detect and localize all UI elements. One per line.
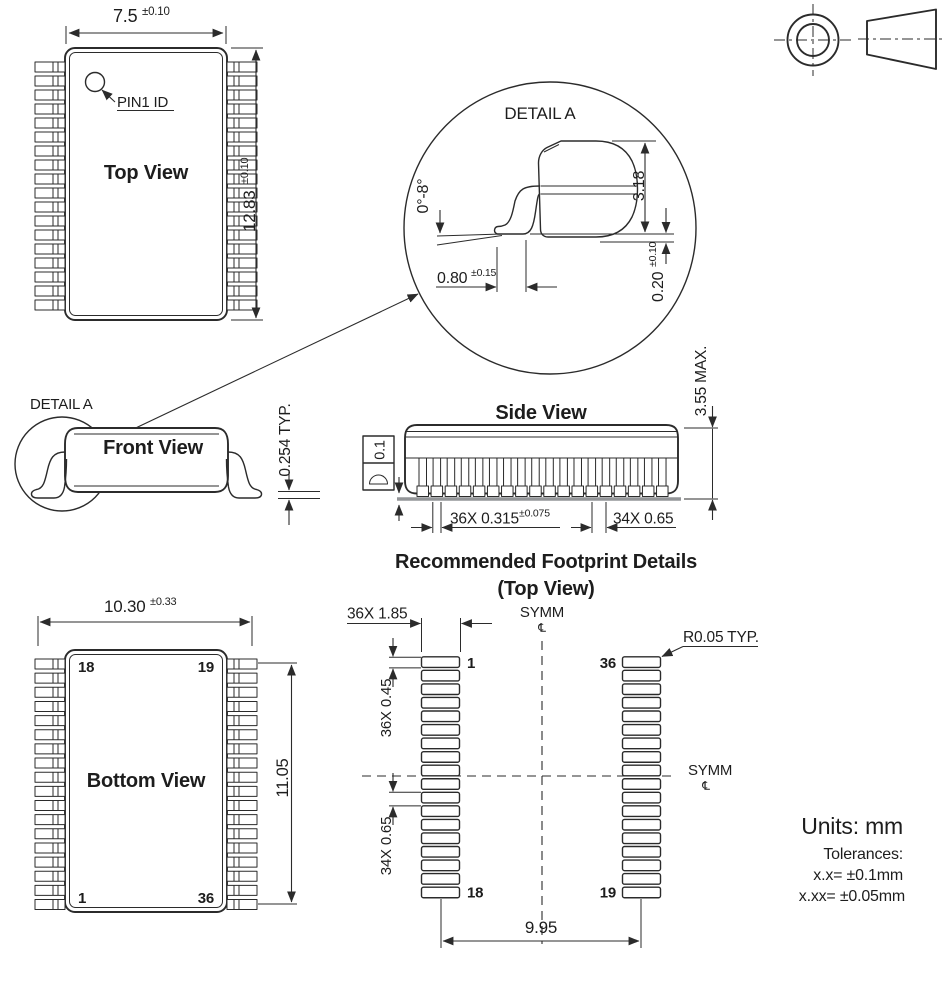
top-view-pins-left bbox=[35, 62, 65, 310]
detail-lead bbox=[495, 186, 540, 234]
footprint-pad bbox=[623, 806, 661, 817]
detail-a-title: DETAIL A bbox=[504, 104, 576, 123]
footprint-pad bbox=[422, 657, 460, 668]
top-view-title: Top View bbox=[104, 162, 189, 184]
third-angle-projection-icon bbox=[774, 4, 945, 76]
side-lead-width-value: 36X 0.315 bbox=[450, 511, 519, 528]
pin bbox=[227, 146, 257, 156]
front-view-title: Front View bbox=[103, 437, 204, 459]
package-mechanical-drawing: 7.5 ±0.10 PIN1 ID Top View 12.83 ±0.10 D… bbox=[0, 0, 952, 983]
footprint-pad bbox=[623, 847, 661, 858]
pin bbox=[35, 843, 65, 853]
footprint-pad bbox=[623, 765, 661, 776]
notes-block: Units: mm Tolerances: x.x= ±0.1mm x.xx= … bbox=[799, 813, 905, 905]
pin bbox=[227, 687, 257, 697]
side-lead bbox=[431, 458, 443, 497]
footprint-pad bbox=[422, 684, 460, 695]
footprint-pad bbox=[422, 765, 460, 776]
pin bbox=[227, 786, 257, 796]
footprint-pad bbox=[422, 847, 460, 858]
bottom-view-span-dimension: 11.05 bbox=[258, 663, 297, 904]
footprint-pad bbox=[422, 711, 460, 722]
footprint-corner-radius-value: R0.05 TYP. bbox=[683, 629, 759, 646]
footprint-pad bbox=[422, 752, 460, 763]
side-lead bbox=[417, 458, 429, 497]
pin bbox=[227, 772, 257, 782]
bottom-pin36-label: 36 bbox=[198, 890, 214, 907]
pin bbox=[227, 132, 257, 142]
pin bbox=[227, 801, 257, 811]
side-lead bbox=[628, 458, 640, 497]
pin bbox=[35, 300, 65, 310]
footprint-pads-right bbox=[623, 657, 661, 898]
footprint-pad19-label: 19 bbox=[600, 885, 616, 902]
footprint-pad bbox=[422, 887, 460, 898]
pin bbox=[227, 871, 257, 881]
footprint-pad-pitch-value: 34X 0.65 bbox=[378, 817, 395, 875]
bottom-width-tolerance: ±0.33 bbox=[150, 596, 177, 608]
footprint-pad bbox=[623, 833, 661, 844]
pin bbox=[227, 673, 257, 683]
footprint-pad bbox=[422, 792, 460, 803]
top-view-pins-right bbox=[227, 62, 257, 310]
side-lead bbox=[459, 458, 471, 497]
footprint-pad bbox=[422, 738, 460, 749]
footprint-title-line1: Recommended Footprint Details bbox=[395, 551, 697, 573]
pin bbox=[35, 871, 65, 881]
pin bbox=[35, 76, 65, 86]
pin bbox=[227, 286, 257, 296]
top-view-width-dimension: 7.5 ±0.10 bbox=[66, 6, 226, 44]
footprint-pad bbox=[422, 819, 460, 830]
detail-lead-thickness-dimension: 0.20 ±0.10 bbox=[647, 208, 667, 302]
pin bbox=[35, 829, 65, 839]
footprint-pad bbox=[422, 806, 460, 817]
top-view: 7.5 ±0.10 PIN1 ID Top View 12.83 ±0.10 bbox=[35, 6, 263, 320]
pin bbox=[35, 815, 65, 825]
footprint-pad bbox=[623, 738, 661, 749]
pin bbox=[227, 843, 257, 853]
pin bbox=[35, 772, 65, 782]
pin bbox=[35, 160, 65, 170]
pin bbox=[35, 857, 65, 867]
side-lead bbox=[586, 458, 598, 497]
pin bbox=[35, 188, 65, 198]
pin bbox=[227, 244, 257, 254]
footprint-pad bbox=[623, 752, 661, 763]
side-view-title: Side View bbox=[495, 402, 587, 424]
pin bbox=[35, 174, 65, 184]
top-width-tolerance: ±0.10 bbox=[142, 6, 170, 18]
pin bbox=[35, 104, 65, 114]
footprint-view: SYMM ℄ SYMM ℄ 1 18 36 19 36X 1.85 R0.05 … bbox=[347, 604, 759, 948]
side-lead bbox=[502, 458, 514, 497]
pin bbox=[227, 900, 257, 910]
detail-lead-angle: 0°-8° bbox=[415, 179, 502, 245]
footprint-pad bbox=[422, 670, 460, 681]
pin bbox=[227, 76, 257, 86]
pin bbox=[227, 701, 257, 711]
pin bbox=[35, 118, 65, 128]
pin bbox=[35, 716, 65, 726]
footprint-pad bbox=[623, 874, 661, 885]
symm-label-top: SYMM bbox=[520, 604, 564, 621]
footprint-pad-width-value: 36X 0.45 bbox=[378, 679, 395, 737]
bottom-pin18-label: 18 bbox=[78, 659, 94, 676]
footprint-pad bbox=[623, 779, 661, 790]
pin bbox=[227, 258, 257, 268]
footprint-pad bbox=[422, 779, 460, 790]
footprint-pad bbox=[623, 670, 661, 681]
footprint-pad bbox=[422, 833, 460, 844]
side-lead bbox=[445, 458, 457, 497]
pin bbox=[227, 744, 257, 754]
bottom-span-value: 11.05 bbox=[274, 758, 292, 797]
detail-lead-thickness-value: 0.20 bbox=[650, 271, 667, 302]
pin bbox=[35, 659, 65, 669]
detail-foot-length-value: 0.80 bbox=[437, 270, 468, 287]
footprint-pad bbox=[623, 819, 661, 830]
pin bbox=[227, 62, 257, 72]
detail-foot-length-tolerance: ±0.15 bbox=[471, 267, 497, 279]
side-lead bbox=[530, 458, 542, 497]
bottom-pin19-label: 19 bbox=[198, 659, 214, 676]
side-lead bbox=[642, 458, 654, 497]
side-lead bbox=[544, 458, 556, 497]
flatness-value: 0.1 bbox=[373, 440, 389, 460]
footprint-pad bbox=[623, 711, 661, 722]
top-height-value: 12.83 bbox=[240, 190, 259, 232]
pin bbox=[227, 90, 257, 100]
side-lead bbox=[572, 458, 584, 497]
detail-a-callout-label: DETAIL A bbox=[30, 396, 93, 413]
bottom-width-value: 10.30 bbox=[104, 597, 146, 616]
side-lead bbox=[516, 458, 528, 497]
pin bbox=[227, 272, 257, 282]
pin bbox=[35, 900, 65, 910]
side-lead-width-dimension: 36X 0.315 ±0.075 bbox=[411, 502, 560, 533]
pin bbox=[227, 659, 257, 669]
detail-foot-length-dimension: 0.80 ±0.15 bbox=[436, 240, 557, 292]
side-lead-pitch-value: 34X 0.65 bbox=[613, 511, 673, 528]
side-lead bbox=[614, 458, 626, 497]
detail-lead-angle-value: 0°-8° bbox=[415, 179, 432, 214]
tolerances-title: Tolerances: bbox=[823, 846, 903, 863]
front-foot-thickness-value: 0.254 TYP. bbox=[277, 403, 294, 476]
footprint-span-dimension: 9.95 bbox=[441, 899, 641, 948]
pin bbox=[227, 885, 257, 895]
footprint-pad-width-dimension: 36X 0.45 bbox=[378, 638, 421, 737]
detail-a-view: DETAIL A 3.18 0.20 ±0.10 bbox=[404, 82, 696, 374]
footprint-pad bbox=[623, 697, 661, 708]
footprint-pad bbox=[623, 792, 661, 803]
centerline-symbol-top: ℄ bbox=[537, 621, 546, 635]
footprint-corner-radius-callout: R0.05 TYP. bbox=[662, 629, 759, 657]
front-view-left-lead bbox=[31, 452, 66, 498]
footprint-title-line2: (Top View) bbox=[497, 578, 594, 600]
pin bbox=[35, 132, 65, 142]
footprint-pads-left bbox=[422, 657, 460, 898]
footprint-pad-length-value: 36X 1.85 bbox=[347, 606, 407, 623]
side-lead bbox=[473, 458, 485, 497]
pin bbox=[35, 701, 65, 711]
pin bbox=[35, 146, 65, 156]
side-lead bbox=[600, 458, 612, 497]
flatness-control-frame: 0.1 bbox=[363, 436, 399, 521]
footprint-pad-pitch-dimension: 34X 0.65 bbox=[378, 773, 421, 875]
bottom-pin1-label: 1 bbox=[78, 890, 86, 907]
pin bbox=[35, 202, 65, 212]
bottom-view-pins-right bbox=[227, 659, 257, 910]
pin bbox=[35, 286, 65, 296]
pin bbox=[35, 62, 65, 72]
pin bbox=[227, 758, 257, 768]
bottom-view-pins-left bbox=[35, 659, 65, 910]
top-height-tolerance: ±0.10 bbox=[239, 157, 251, 184]
side-lead bbox=[657, 458, 669, 497]
symm-label-right: SYMM bbox=[688, 762, 732, 779]
bottom-view-title: Bottom View bbox=[87, 770, 206, 792]
pin bbox=[227, 815, 257, 825]
pin bbox=[35, 258, 65, 268]
side-height-dimension: 3.55 MAX. bbox=[684, 346, 718, 520]
footprint-pad bbox=[422, 697, 460, 708]
footprint-pad1-label: 1 bbox=[467, 655, 475, 672]
footprint-pad18-label: 18 bbox=[467, 885, 483, 902]
detail-body-height-value: 3.18 bbox=[631, 171, 648, 202]
pin bbox=[227, 118, 257, 128]
pin bbox=[35, 230, 65, 240]
pin bbox=[35, 758, 65, 768]
footprint-pad-length-dimension: 36X 1.85 bbox=[347, 606, 492, 653]
pin bbox=[35, 786, 65, 796]
pin bbox=[35, 744, 65, 754]
pin bbox=[35, 687, 65, 697]
pin1-id-label: PIN1 ID bbox=[117, 94, 168, 111]
pin bbox=[35, 90, 65, 100]
front-view-right-lead bbox=[227, 452, 262, 498]
units-note: Units: mm bbox=[801, 813, 903, 839]
footprint-pad bbox=[623, 684, 661, 695]
footprint-pad bbox=[422, 860, 460, 871]
side-height-value: 3.55 MAX. bbox=[693, 346, 710, 417]
pin bbox=[35, 730, 65, 740]
footprint-pad bbox=[623, 887, 661, 898]
footprint-pad bbox=[623, 657, 661, 668]
footprint-span-value: 9.95 bbox=[525, 918, 557, 937]
pin bbox=[35, 885, 65, 895]
bottom-view-width-dimension: 10.30 ±0.33 bbox=[38, 596, 252, 646]
pin bbox=[227, 829, 257, 839]
front-foot-thickness-dimension: 0.254 TYP. bbox=[277, 403, 320, 525]
pin bbox=[35, 216, 65, 226]
front-view: DETAIL A Front View 0.254 TYP. bbox=[15, 396, 320, 525]
tolerance-2dp-note: x.xx= ±0.05mm bbox=[799, 888, 905, 905]
pin bbox=[227, 857, 257, 867]
pin bbox=[227, 730, 257, 740]
pin bbox=[35, 673, 65, 683]
side-lead bbox=[558, 458, 570, 497]
tolerance-1dp-note: x.x= ±0.1mm bbox=[813, 867, 903, 884]
drawing-canvas: 7.5 ±0.10 PIN1 ID Top View 12.83 ±0.10 D… bbox=[0, 0, 952, 983]
pin bbox=[35, 244, 65, 254]
pin bbox=[35, 272, 65, 282]
footprint-pad bbox=[422, 874, 460, 885]
footprint-pad bbox=[623, 725, 661, 736]
detail-lead-thickness-tolerance: ±0.10 bbox=[647, 241, 659, 267]
pin bbox=[227, 716, 257, 726]
footprint-pad bbox=[623, 860, 661, 871]
detail-body-section bbox=[539, 141, 638, 237]
top-width-value: 7.5 bbox=[113, 6, 138, 26]
centerline-symbol-right: ℄ bbox=[701, 779, 710, 793]
pin bbox=[227, 104, 257, 114]
side-lead-width-tolerance: ±0.075 bbox=[519, 508, 550, 520]
side-lead-pitch-dimension: 34X 0.65 bbox=[571, 502, 676, 533]
side-lead bbox=[487, 458, 499, 497]
pin bbox=[35, 801, 65, 811]
footprint-pad36-label: 36 bbox=[600, 655, 616, 672]
pin bbox=[227, 300, 257, 310]
footprint-pad bbox=[422, 725, 460, 736]
bottom-view: 10.30 ±0.33 18 19 1 36 Bottom View 11.05 bbox=[35, 596, 297, 912]
